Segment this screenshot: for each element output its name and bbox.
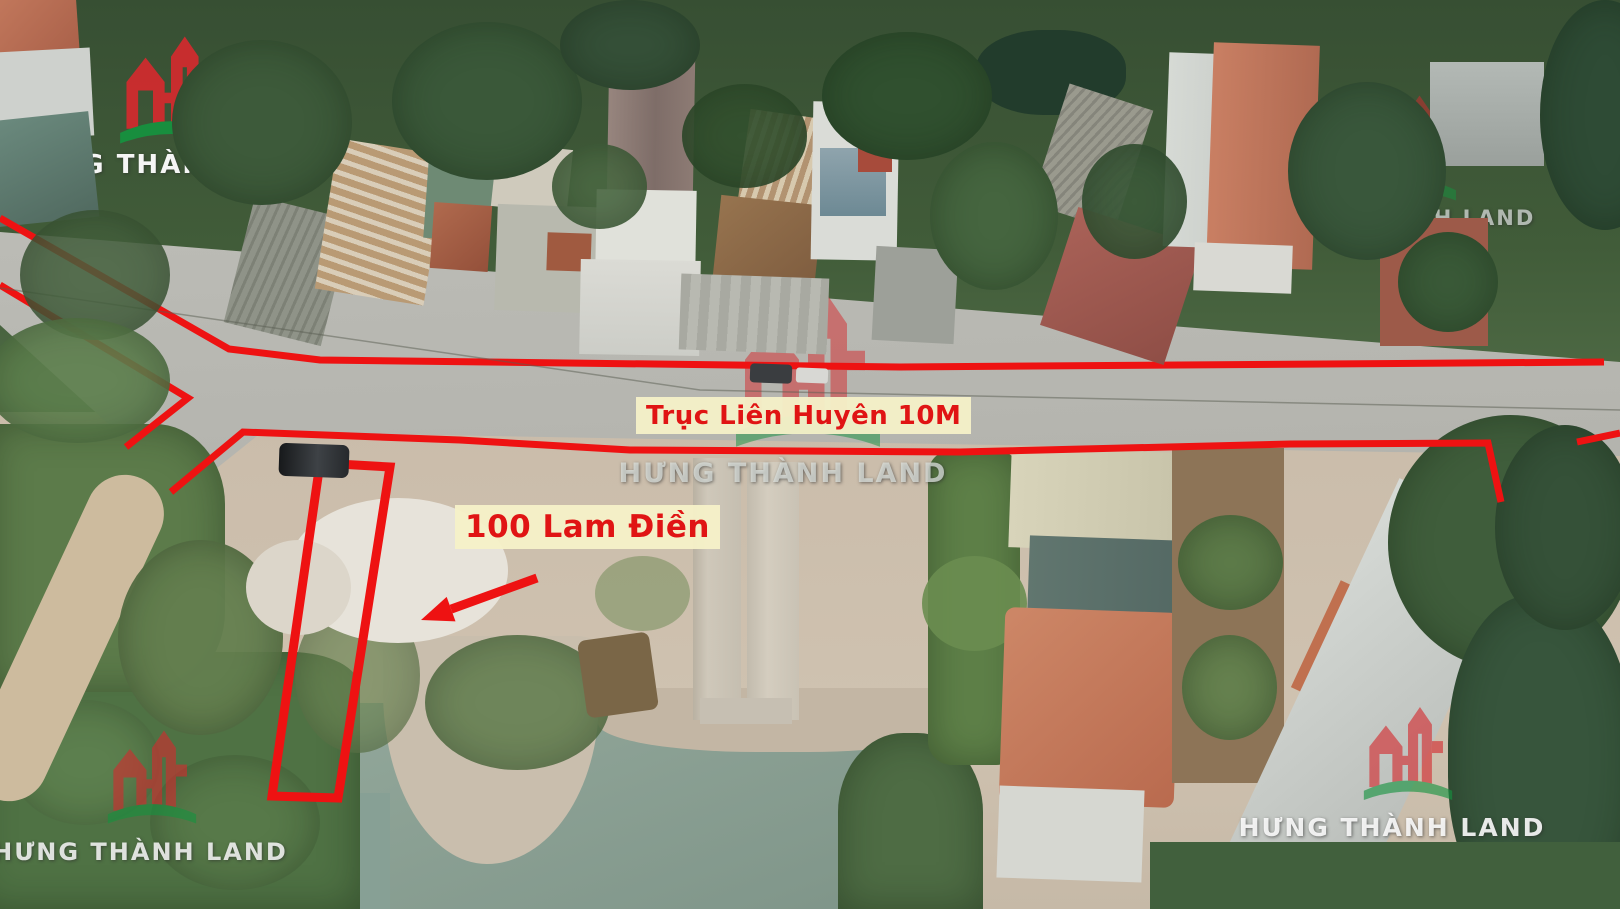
house-wall-white: [1193, 242, 1293, 293]
warehouse-roof-gray: [679, 273, 830, 354]
tree-canopy: [682, 84, 807, 188]
tree-canopy: [930, 142, 1058, 290]
pickup-truck: [278, 443, 349, 478]
tree-canopy: [560, 0, 700, 90]
aerial-photo: Trục Liên Huyên 10M 100 Lam Điền HƯNG TH…: [0, 0, 1620, 909]
concrete-strip: [747, 462, 799, 720]
tree-canopy: [172, 40, 352, 205]
brand-logo-icon: [106, 720, 198, 834]
tree-canopy: [1288, 82, 1446, 260]
rubble-pile: [246, 540, 351, 635]
brand-watermark-text: HƯNG THÀNH LAND: [1092, 813, 1620, 842]
vehicle-dark: [750, 363, 793, 383]
vehicle-light: [796, 367, 829, 383]
roof-metal-gray: [1430, 62, 1544, 166]
tree-blob: [1398, 232, 1498, 332]
concrete-strip: [693, 458, 741, 720]
shore-vegetation: [1150, 842, 1620, 909]
road-width-label: Trục Liên Huyên 10M: [636, 397, 971, 434]
tree-canopy: [1082, 144, 1187, 259]
tree-canopy: [392, 22, 582, 180]
brand-watermark-text: HƯNG THÀNH LAND: [483, 458, 1083, 489]
tree-canopy: [552, 144, 647, 229]
plot-area-label: 100 Lam Điền: [455, 505, 720, 549]
tree-canopy: [822, 32, 992, 160]
lot-shrub: [595, 556, 690, 631]
brand-logo-icon: [1362, 696, 1454, 811]
lakeside-hut: [577, 631, 659, 718]
concrete-pad: [700, 698, 792, 724]
roof-red-tile-small: [430, 202, 492, 272]
brand-watermark-text: HƯNG THÀNH LAND: [0, 838, 440, 866]
garden-shrub: [1182, 635, 1277, 740]
garden-shrub: [1178, 515, 1283, 610]
hip-roof-house-salmon: [999, 607, 1181, 808]
